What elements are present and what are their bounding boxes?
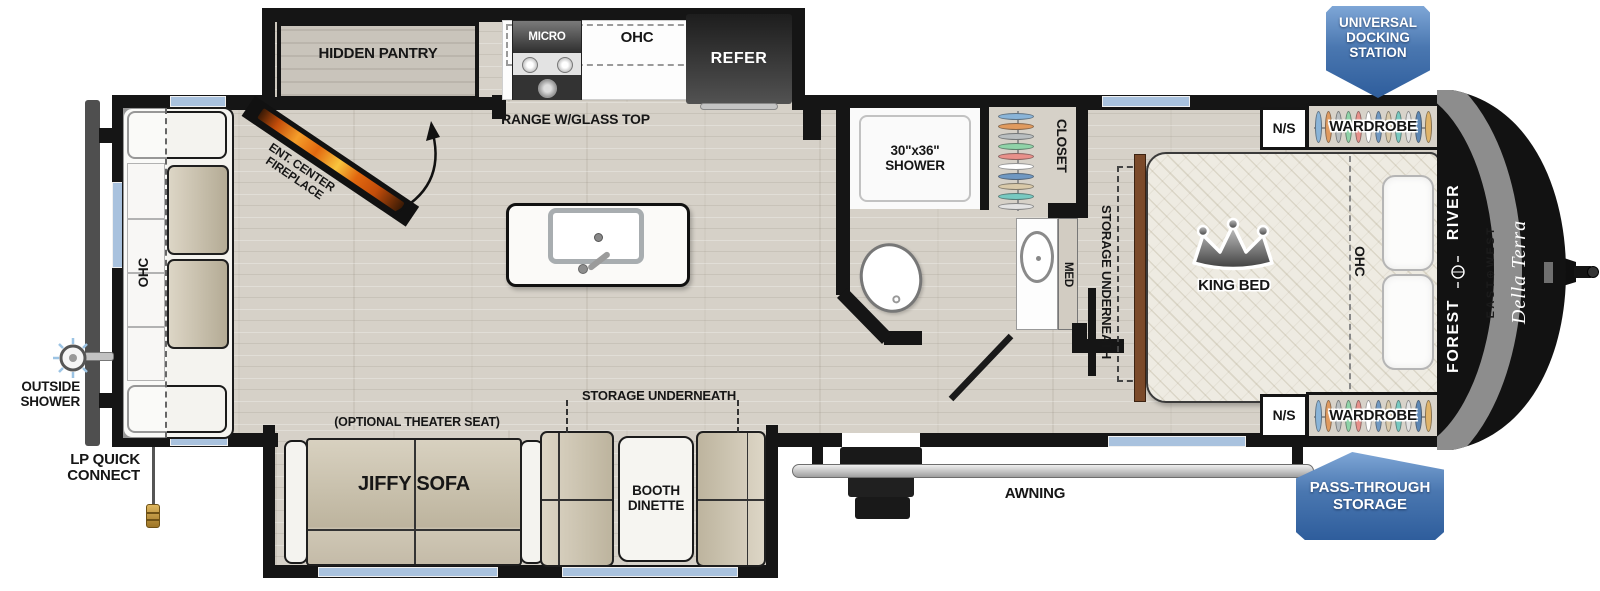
jiffy-sofa-armrest xyxy=(284,440,308,564)
bath-wall xyxy=(836,95,850,295)
lp-line xyxy=(152,447,155,504)
microwave-label: MICRO xyxy=(528,31,565,43)
bath-wall xyxy=(980,106,989,210)
entry-door-opening xyxy=(842,433,920,447)
lp-connector-ridge xyxy=(147,519,159,521)
front-cap: FOREST RIVER EAST⊕WEST Della Terra xyxy=(1420,80,1600,470)
dinette-label: BOOTH DINETTE xyxy=(620,484,692,513)
wardrobe-label: WARDROBE xyxy=(1309,119,1437,135)
king-bed-label: KING BED xyxy=(1180,278,1288,294)
shower-pan: 30"x36" SHOWER xyxy=(859,115,971,202)
storage-leader xyxy=(566,400,568,433)
sofa-ohc-label: OHC xyxy=(137,258,152,287)
shower: 30"x36" SHOWER xyxy=(850,108,980,209)
closet: CLOSET xyxy=(989,107,1076,215)
hanger-icon xyxy=(998,163,1034,170)
window xyxy=(1102,96,1190,107)
window xyxy=(170,96,226,107)
sofa-ohc-overlay: OHC xyxy=(123,108,167,438)
microwave-range-unit: MICRO xyxy=(512,20,582,100)
awning-rod xyxy=(792,464,1314,478)
closet-hangers xyxy=(993,111,1038,211)
refrigerator-label: REFER xyxy=(711,50,768,67)
hanger-icon xyxy=(998,133,1034,140)
range-burner-strip xyxy=(513,53,581,75)
sofa-cushion xyxy=(167,259,229,349)
rv-floorplan: HIDDEN PANTRY MICRO OHC REFER RANGE W/GL… xyxy=(0,0,1600,591)
brand-della-terra: Della Terra xyxy=(1508,220,1530,325)
bath-wall-stub xyxy=(1048,203,1088,218)
burner-icon xyxy=(557,57,573,73)
outside-shower-icon xyxy=(53,338,87,378)
window xyxy=(318,567,498,577)
entry-steps xyxy=(855,497,910,519)
hanger-icon xyxy=(998,153,1034,160)
bed-ohc-divider xyxy=(1349,156,1351,399)
lp-quick-connect-label: LP QUICK CONNECT xyxy=(28,452,140,484)
closet-label: CLOSET xyxy=(1053,119,1068,173)
nightstand-label: N/S xyxy=(1273,121,1296,136)
brand-east-west: EAST⊕WEST xyxy=(1485,226,1497,319)
kitchen-slide-wall xyxy=(792,8,805,108)
hanger-icon xyxy=(998,183,1034,190)
dinette-slide-wall xyxy=(263,425,275,577)
window xyxy=(562,567,738,577)
burner-icon xyxy=(538,79,557,98)
jiffy-sofa-seat-edge xyxy=(308,529,520,531)
nightstand-label: N/S xyxy=(1273,408,1296,423)
hanger-icon xyxy=(998,123,1034,130)
awning-label: AWNING xyxy=(990,486,1080,502)
hanger-icon xyxy=(998,193,1034,200)
sink-drain xyxy=(594,233,603,242)
brand-forest: FOREST xyxy=(1445,299,1462,373)
rear-bumper xyxy=(85,100,100,446)
shower-label: 30"x36" SHOWER xyxy=(880,144,950,173)
wardrobe-label: WARDROBE xyxy=(1309,408,1437,424)
bench-divider xyxy=(542,499,612,501)
toilet-drain xyxy=(891,294,901,304)
hanger-icon xyxy=(998,203,1034,210)
jiffy-sofa-seam xyxy=(414,440,416,564)
bed-runner xyxy=(1134,154,1146,402)
dinette-bench-right xyxy=(696,431,766,567)
med-cabinet: MED xyxy=(1058,218,1078,330)
nightstand-top: N/S xyxy=(1260,107,1308,150)
hitch-slot xyxy=(1544,262,1553,283)
lp-connector-icon xyxy=(146,504,160,528)
bath-wall-stub xyxy=(884,331,922,345)
dinette-table: BOOTH DINETTE xyxy=(618,436,694,562)
bench-divider xyxy=(698,499,764,501)
hanger-icon xyxy=(998,143,1034,150)
range xyxy=(513,75,581,100)
outside-shower-pipe xyxy=(84,352,114,361)
brand-river: RIVER xyxy=(1445,184,1462,240)
dinette-bench-left xyxy=(540,431,614,567)
bumper-mount xyxy=(99,128,113,143)
bumper-mount xyxy=(99,393,113,408)
microwave: MICRO xyxy=(513,21,581,53)
bed-ohc-label: OHC xyxy=(1352,246,1367,277)
window xyxy=(1108,436,1246,447)
bath-wall xyxy=(1076,106,1088,218)
med-label: MED xyxy=(1062,262,1074,287)
wall-stub xyxy=(803,97,821,140)
outside-shower-label: OUTSIDE SHOWER xyxy=(0,380,80,409)
docking-station-badge: UNIVERSAL DOCKING STATION xyxy=(1326,6,1430,98)
jiffy-sofa-label: JIFFY SOFA xyxy=(308,474,520,496)
bench-back-seam xyxy=(558,433,560,565)
wall-bottom xyxy=(766,433,842,447)
burner-icon xyxy=(522,57,538,73)
refrigerator-base xyxy=(700,103,778,110)
storage-leader xyxy=(737,400,739,433)
island-sink xyxy=(548,208,644,264)
jiffy-sofa: JIFFY SOFA xyxy=(306,438,522,566)
theater-seat-label: (OPTIONAL THEATER SEAT) xyxy=(322,416,512,430)
bed-storage-label: STORAGE UNDERNEATH xyxy=(1099,192,1113,372)
hidden-pantry-label: HIDDEN PANTRY xyxy=(318,46,438,62)
refrigerator: REFER xyxy=(686,14,792,104)
dinette-storage-label: STORAGE UNDERNEATH xyxy=(575,389,743,403)
kitchen-slide-wall xyxy=(262,8,275,108)
bath-sink xyxy=(1020,231,1054,283)
dinette-slide-wall xyxy=(766,425,778,577)
nightstand-bottom: N/S xyxy=(1260,394,1308,438)
kitchen-ohc-label: OHC xyxy=(592,30,682,46)
hanger-icon xyxy=(998,173,1034,180)
bench-back-seam xyxy=(747,433,749,565)
hitch-coupler xyxy=(1588,267,1599,278)
hanger-icon xyxy=(998,113,1034,120)
island-faucet-base xyxy=(578,264,588,274)
lp-connector-ridge xyxy=(147,512,159,514)
bedroom-partition xyxy=(1088,288,1096,376)
sofa-cushion xyxy=(167,165,229,255)
range-label: RANGE W/GLASS TOP xyxy=(498,112,653,127)
sink-drain xyxy=(1036,256,1041,261)
